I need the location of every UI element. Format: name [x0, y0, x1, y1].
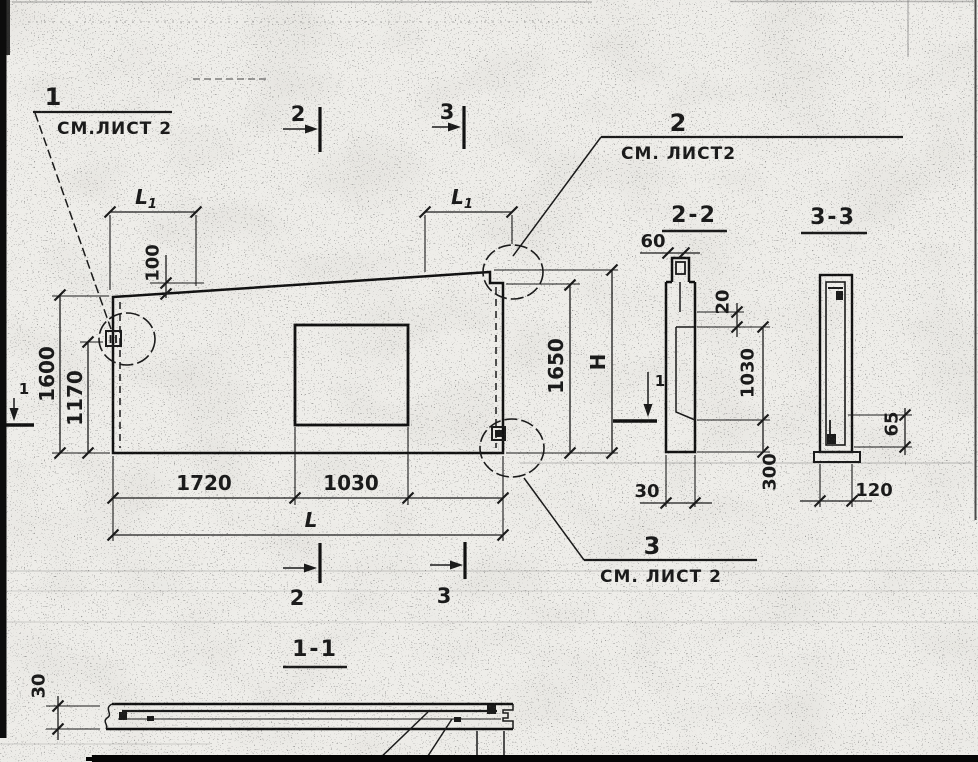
drawing-canvas: L1 L1 100 1600 1170 1650: [0, 0, 978, 762]
scanned-drawing-sheet: L1 L1 100 1600 1170 1650: [0, 0, 978, 762]
scan-speckle-overlay: [0, 0, 978, 762]
